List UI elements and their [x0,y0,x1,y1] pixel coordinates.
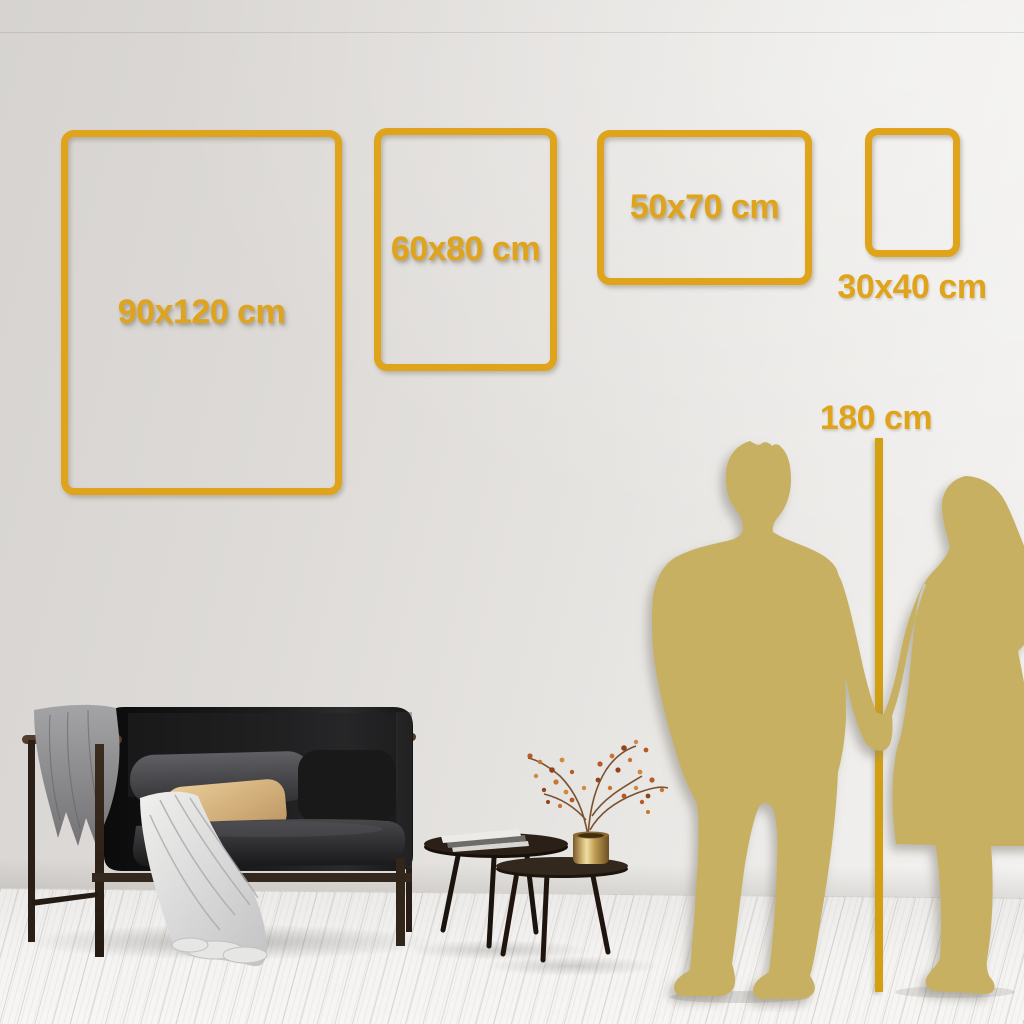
sofa-left-rail [32,892,98,906]
size-label-60x80: 60x80 cm [391,230,540,269]
sofa [0,665,450,970]
woman-silhouette [868,476,1024,994]
brass-vase [573,832,609,865]
sofa-front-left-post [95,744,104,957]
poster-frame-90x120: 90x120 cm [61,130,342,495]
size-label-30x40: 30x40 cm [837,268,986,306]
sofa-far-left-post [28,740,35,942]
size-label-50x70: 50x70 cm [630,188,779,227]
man-silhouette [652,441,887,999]
couple-silhouette [630,428,1024,1012]
size-label-90x120: 90x120 cm [118,293,286,332]
poster-size-guide-scene: 90x120 cm 60x80 cm 50x70 cm 30x40 cm 180… [0,0,1024,1024]
size-label-30x40-wrap: 30x40 cm [815,268,1009,307]
poster-frame-30x40 [865,128,960,257]
sofa-dark-cushion [298,750,396,824]
poster-frame-50x70: 50x70 cm [597,130,812,285]
ceiling-line [0,32,1024,33]
sofa-front-right-leg [396,858,405,946]
sofa-stretcher-bar [92,873,412,882]
poster-frame-60x80: 60x80 cm [374,128,557,371]
